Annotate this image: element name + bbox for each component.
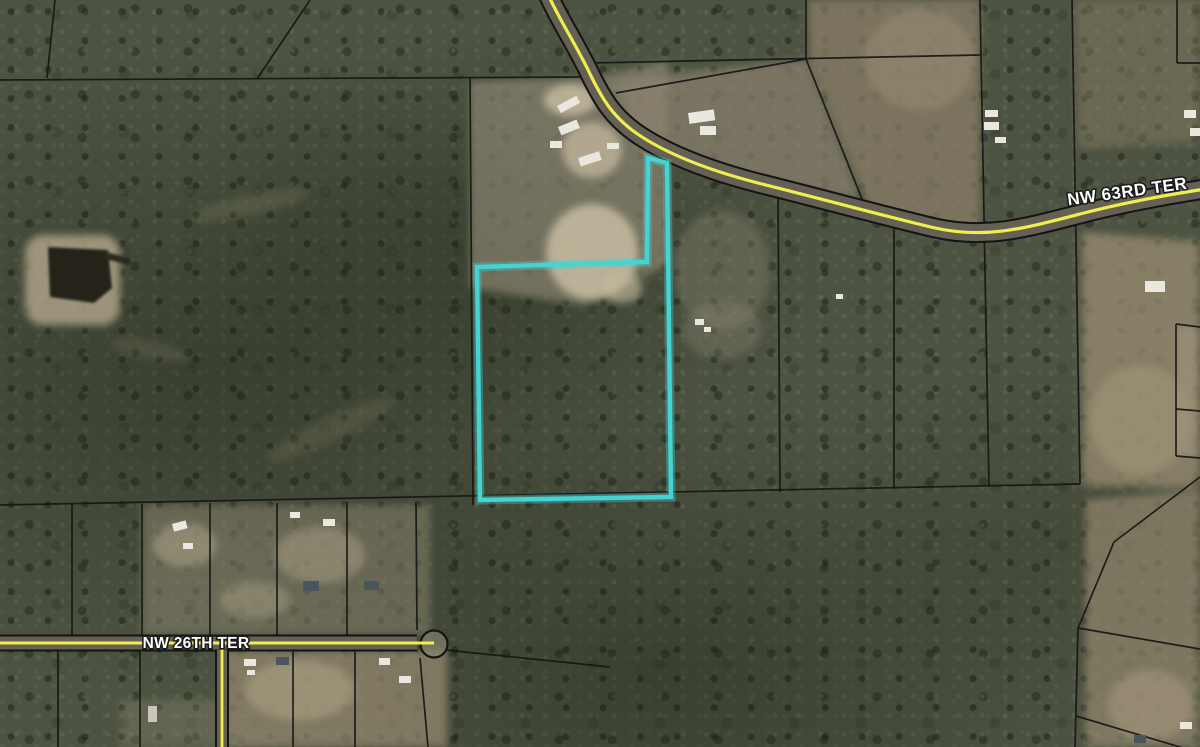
parcel-boundary-line: [416, 502, 417, 630]
parcel-boundary-line: [446, 650, 610, 667]
parcel-boundary-line: [0, 77, 580, 80]
road-label-nw-26th-ter: NW 26TH TER: [143, 635, 250, 652]
parcel-boundary-line: [47, 0, 55, 78]
parcel-boundary-line: [778, 194, 780, 492]
map-canvas[interactable]: NW 63RD TER NW 26TH TER: [0, 0, 1200, 747]
parcel-boundary-line: [257, 0, 310, 79]
map-overlay: NW 63RD TER NW 26TH TER: [0, 0, 1200, 747]
